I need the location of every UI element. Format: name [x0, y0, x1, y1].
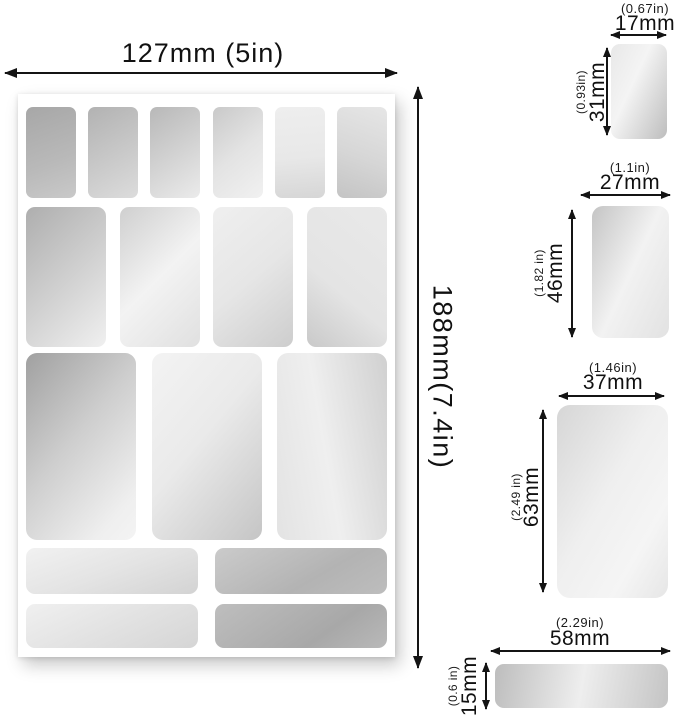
mirror-sticker — [26, 548, 198, 594]
mirror-sticker — [150, 107, 200, 198]
sample2-height-inch-label: (1.82 in) — [532, 249, 546, 297]
mirror-sticker-sheet — [18, 94, 395, 657]
sample-sticker-17x31 — [611, 44, 667, 139]
mirror-sticker — [120, 207, 200, 347]
sample1-width-arrow — [611, 34, 666, 36]
sample4-height-arrow — [485, 663, 487, 709]
mirror-sticker — [215, 604, 387, 648]
sheet-height-arrow — [417, 87, 419, 668]
sample1-height-mm-label: 31mm — [586, 62, 610, 122]
sample-sticker-37x63 — [557, 405, 668, 598]
mirror-sticker — [337, 107, 387, 198]
mirror-sticker — [88, 107, 138, 198]
sample2-height-arrow — [571, 210, 573, 337]
mirror-sticker — [26, 604, 198, 648]
product-dimension-diagram: 127mm (5in) 188mm(7.4in) — [0, 0, 679, 721]
mirror-sticker — [26, 207, 106, 347]
sample3-width-arrow — [559, 395, 664, 397]
mirror-sticker — [275, 107, 325, 198]
sheet-width-label: 127mm (5in) — [23, 38, 383, 69]
sample4-height-mm-label: 15mm — [458, 656, 482, 716]
sample4-width-mm-label: 58mm — [525, 627, 635, 651]
sample3-height-mm-label: 63mm — [520, 467, 544, 527]
mirror-sticker — [26, 107, 76, 198]
mirror-sticker — [307, 207, 387, 347]
sample3-height-inch-label: (2.49 in) — [509, 473, 523, 521]
sample2-width-arrow — [581, 194, 670, 196]
mirror-sticker — [213, 207, 293, 347]
sheet-row-strip — [26, 548, 387, 594]
sample4-width-arrow — [491, 650, 670, 652]
sample2-height-mm-label: 46mm — [544, 243, 568, 303]
sheet-height-label: 188mm(7.4in) — [427, 285, 458, 470]
sheet-width-arrow — [5, 72, 397, 74]
sample4-height-inch-label: (0.6 in) — [446, 666, 460, 707]
mirror-sticker — [215, 548, 387, 594]
sample1-height-inch-label: (0.93in) — [574, 70, 588, 114]
sample-sticker-27x46 — [592, 206, 669, 338]
sheet-row-small — [26, 107, 387, 198]
sample3-width-mm-label: 37mm — [558, 371, 668, 395]
mirror-sticker — [152, 353, 262, 540]
mirror-sticker — [26, 353, 136, 540]
mirror-sticker — [277, 353, 387, 540]
sample-sticker-58x15 — [495, 664, 668, 708]
sheet-row-large — [26, 353, 387, 540]
sheet-row-medium — [26, 207, 387, 347]
mirror-sticker — [213, 107, 263, 198]
sheet-row-strip — [26, 604, 387, 648]
